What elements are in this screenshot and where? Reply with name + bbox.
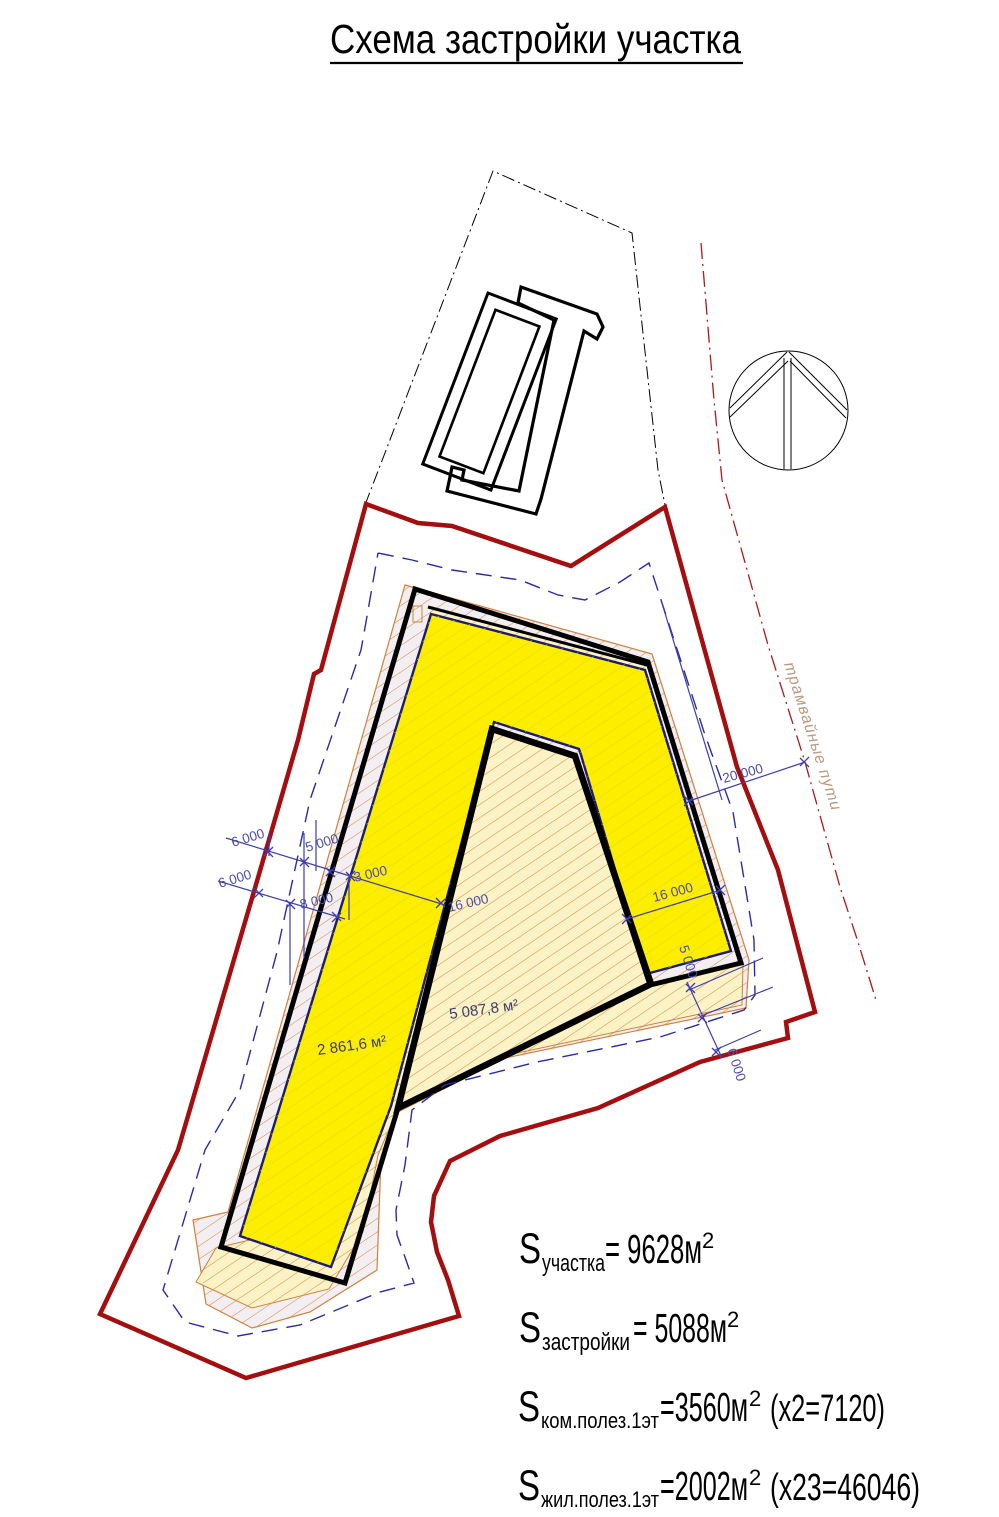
svg-text:2: 2 — [727, 1307, 739, 1332]
svg-text:2: 2 — [702, 1228, 714, 1253]
svg-text:2: 2 — [749, 1465, 761, 1490]
svg-text:S: S — [518, 1462, 540, 1510]
svg-text:=2002м: =2002м — [660, 1463, 748, 1509]
svg-text:S: S — [519, 1304, 541, 1352]
svg-text:ком.полез.1эт: ком.полез.1эт — [541, 1408, 659, 1433]
svg-text:(х2=7120): (х2=7120) — [770, 1388, 885, 1430]
svg-text:= 9628м: = 9628м — [605, 1226, 702, 1272]
svg-text:застройки: застройки — [542, 1329, 630, 1356]
svg-text:= 5088м: = 5088м — [633, 1305, 727, 1351]
svg-text:S: S — [518, 1383, 540, 1431]
svg-text:(х23=46046): (х23=46046) — [770, 1467, 920, 1509]
svg-text:=3560м: =3560м — [660, 1384, 748, 1430]
svg-text:6 000: 6 000 — [229, 826, 266, 850]
svg-text:участка: участка — [542, 1250, 605, 1277]
svg-text:жил.полез.1эт: жил.полез.1эт — [541, 1487, 659, 1512]
svg-text:S: S — [519, 1225, 541, 1273]
svg-text:2: 2 — [749, 1386, 761, 1411]
svg-text:Схема застройки участка: Схема застройки участка — [330, 16, 741, 62]
svg-text:6 000: 6 000 — [216, 867, 253, 891]
